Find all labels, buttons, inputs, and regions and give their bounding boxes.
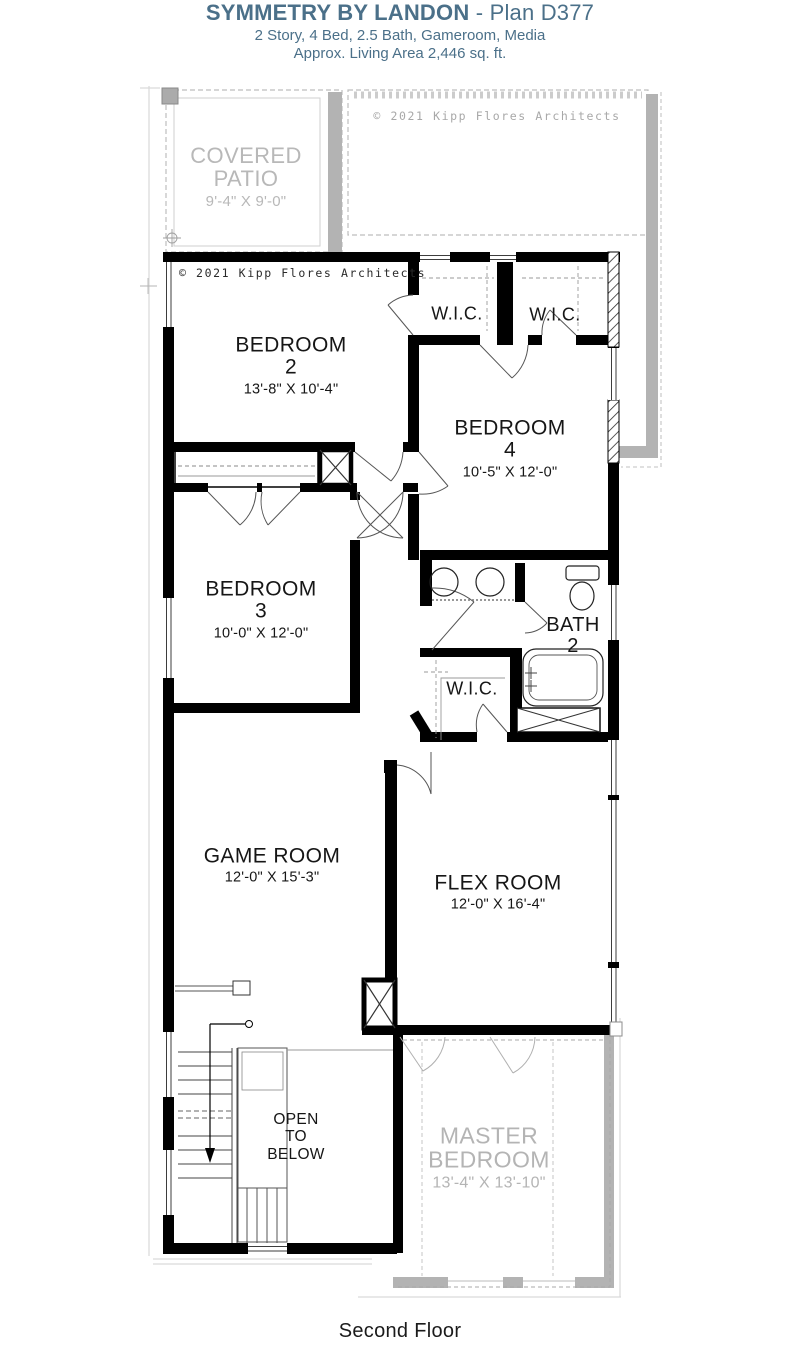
room-label-wic-2: W.I.C. [529, 305, 580, 324]
toilet [566, 566, 599, 610]
window [163, 262, 174, 327]
chase-box [364, 980, 395, 1028]
copyright-notice-top: © 2021 Kipp Flores Architects [373, 110, 620, 122]
bathtub [523, 649, 603, 706]
room-label-wic-1: W.I.C. [431, 304, 482, 323]
page-title: SYMMETRY BY LANDON - Plan D377 [0, 0, 800, 26]
gray-roof-edge-horizontal [619, 446, 658, 458]
room-label-bedroom-4: BEDROOM 4 10'-5" X 12'-0" [454, 418, 565, 481]
room-label-bath-2: BATH 2 [546, 615, 599, 657]
door-arc [355, 452, 403, 481]
window [248, 1243, 287, 1254]
door-arc [432, 588, 474, 650]
floor-plan-drawing [0, 0, 800, 1349]
door-arc [397, 752, 431, 794]
label-open-to-below: OPEN TO BELOW [267, 1111, 324, 1163]
stair-direction-arrow [205, 1021, 253, 1164]
window [163, 598, 174, 678]
room-label-flex-room: FLEX ROOM 12'-0" X 16'-4" [434, 873, 561, 914]
door-arc [525, 602, 547, 633]
copyright-notice-inner: © 2021 Kipp Flores Architects [179, 267, 426, 279]
door-arc [400, 1037, 535, 1073]
chase-box [320, 450, 351, 485]
plan-subtitle: 2 Story, 4 Bed, 2.5 Bath, Gameroom, Medi… [0, 27, 800, 44]
patio-gray-wall [328, 92, 342, 252]
door-arc [419, 452, 448, 494]
room-label-master-bedroom: MASTER BEDROOM 13'-4" X 13'-10" [428, 1124, 550, 1193]
wall-left [163, 252, 174, 1254]
plan-living-area: Approx. Living Area 2,446 sq. ft. [0, 45, 800, 62]
wall-top [163, 252, 620, 262]
arrowhead-icon [205, 1148, 215, 1163]
door-arc [261, 492, 300, 525]
door-arc [357, 492, 403, 538]
wall-master-left [393, 1035, 403, 1253]
plan-header: SYMMETRY BY LANDON - Plan D377 2 Story, … [0, 0, 800, 62]
gray-roof-edge-vertical [646, 94, 658, 458]
wall-flex-bottom [362, 1025, 619, 1035]
title-bold: SYMMETRY BY LANDON [206, 0, 470, 25]
stair-railing [175, 981, 250, 995]
linen-closet [517, 708, 600, 732]
window [608, 585, 619, 640]
room-label-bedroom-2: BEDROOM 2 13'-8" X 10'-4" [235, 335, 346, 398]
window [608, 348, 619, 400]
windows [163, 252, 619, 1254]
bedroom3-closet [175, 448, 318, 487]
stair-treads [178, 1048, 237, 1243]
corner-column [610, 1022, 622, 1036]
door-arc [388, 295, 413, 335]
faucet-icon [525, 667, 537, 692]
sink-right [476, 568, 504, 596]
window [163, 1150, 174, 1215]
window [490, 252, 516, 262]
window [608, 968, 619, 1025]
window [608, 740, 619, 795]
window [420, 252, 450, 262]
floor-name-label: Second Floor [0, 1320, 800, 1343]
door-arc [480, 345, 528, 378]
door-arc [476, 704, 507, 732]
window [608, 800, 619, 962]
bathroom-vanity [430, 568, 514, 600]
room-label-game-room: GAME ROOM 12'-0" X 15'-3" [204, 846, 341, 887]
floor-plan-page: SYMMETRY BY LANDON - Plan D377 2 Story, … [0, 0, 800, 1349]
room-label-covered-patio: COVERED PATIO 9'-4" X 9'-0" [190, 144, 302, 210]
room-label-bedroom-3: BEDROOM 3 10'-0" X 12'-0" [205, 579, 316, 642]
patio-column [162, 88, 178, 104]
sink-left [430, 568, 458, 596]
title-plan-number: - Plan D377 [469, 0, 594, 25]
room-label-wic-3: W.I.C. [446, 679, 497, 698]
window [163, 1032, 174, 1097]
door-arc [208, 492, 256, 525]
